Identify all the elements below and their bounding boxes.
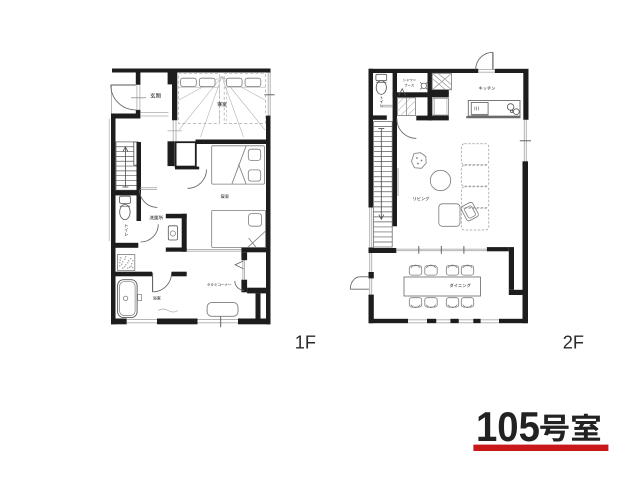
svg-text:1F: 1F [295,333,316,353]
svg-text:2F: 2F [563,333,584,353]
svg-text:105: 105 [476,403,540,450]
